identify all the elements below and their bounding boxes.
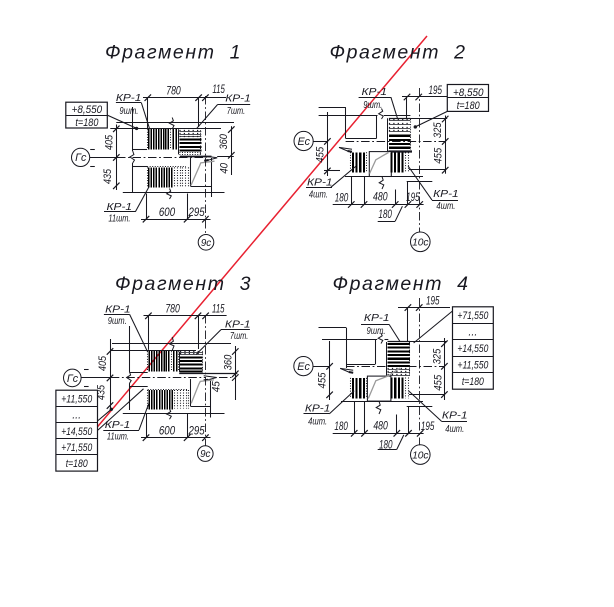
- svg-text:195: 195: [406, 192, 420, 204]
- svg-text:+14,550: +14,550: [61, 426, 92, 438]
- svg-text:195: 195: [426, 295, 440, 307]
- svg-text:40: 40: [218, 162, 230, 174]
- svg-text:4шт.: 4шт.: [436, 201, 455, 212]
- svg-text:435: 435: [102, 168, 114, 184]
- svg-text:КР-1: КР-1: [433, 189, 459, 200]
- svg-text:Фрагмент 4: Фрагмент 4: [332, 273, 469, 295]
- svg-text:Ес: Ес: [297, 136, 310, 148]
- svg-text:4шт.: 4шт.: [445, 424, 464, 435]
- svg-text:9с: 9с: [201, 238, 211, 249]
- svg-text:11шт.: 11шт.: [107, 432, 129, 443]
- svg-text:195: 195: [429, 85, 443, 97]
- svg-text:КР-1: КР-1: [305, 403, 331, 414]
- svg-text:Фрагмент 1: Фрагмент 1: [105, 41, 242, 63]
- svg-text:455: 455: [314, 146, 326, 163]
- svg-text:480: 480: [373, 421, 388, 433]
- svg-text:КР-1: КР-1: [307, 177, 333, 188]
- svg-text:195: 195: [421, 421, 435, 433]
- svg-text:Гс: Гс: [75, 152, 87, 164]
- svg-text:480: 480: [373, 191, 388, 203]
- svg-text:t=180: t=180: [462, 376, 484, 388]
- svg-text:КР-1: КР-1: [105, 304, 131, 315]
- svg-text:7шт.: 7шт.: [227, 106, 245, 117]
- svg-text:325: 325: [432, 122, 444, 138]
- svg-text:t=180: t=180: [66, 458, 88, 470]
- svg-text:780: 780: [166, 86, 181, 98]
- svg-text:КР-1: КР-1: [442, 411, 468, 422]
- svg-text:Фрагмент 2: Фрагмент 2: [329, 41, 466, 63]
- svg-text:405: 405: [103, 134, 115, 150]
- svg-text:180: 180: [334, 421, 348, 433]
- svg-text:115: 115: [212, 304, 225, 316]
- svg-text:4шт.: 4шт.: [309, 189, 328, 200]
- svg-text:КР-1: КР-1: [225, 94, 251, 105]
- svg-text:780: 780: [165, 304, 180, 316]
- svg-text:+71,550: +71,550: [457, 310, 488, 322]
- svg-text:...: ...: [72, 410, 81, 422]
- svg-text:360: 360: [223, 354, 235, 370]
- svg-text:t=180: t=180: [75, 117, 99, 129]
- svg-text:9шт.: 9шт.: [367, 326, 386, 337]
- svg-text:+8,550: +8,550: [453, 87, 484, 99]
- svg-text:10с: 10с: [412, 450, 428, 461]
- svg-text:405: 405: [97, 355, 109, 371]
- svg-text:...: ...: [468, 327, 477, 339]
- svg-text:КР-1: КР-1: [364, 313, 390, 324]
- svg-text:+11,550: +11,550: [61, 394, 92, 406]
- svg-text:КР-1: КР-1: [362, 87, 388, 98]
- svg-text:Ес: Ес: [297, 361, 310, 373]
- svg-text:Гс: Гс: [67, 373, 79, 385]
- svg-text:360: 360: [218, 133, 230, 149]
- svg-text:7шт.: 7шт.: [230, 331, 248, 342]
- svg-text:9с: 9с: [200, 449, 210, 460]
- svg-text:325: 325: [431, 348, 443, 364]
- svg-text:455: 455: [433, 374, 445, 391]
- svg-text:Фрагмент 3: Фрагмент 3: [115, 273, 252, 295]
- svg-text:9шт.: 9шт.: [119, 106, 138, 117]
- svg-text:КР-1: КР-1: [225, 319, 251, 330]
- svg-text:9шт.: 9шт.: [108, 316, 127, 327]
- svg-text:115: 115: [212, 84, 225, 96]
- svg-text:180: 180: [335, 192, 349, 204]
- svg-text:t=180: t=180: [457, 100, 481, 112]
- svg-text:45: 45: [211, 381, 223, 393]
- svg-text:4шт.: 4шт.: [308, 416, 327, 427]
- svg-text:11шт.: 11шт.: [108, 213, 130, 224]
- svg-text:КР-1: КР-1: [105, 420, 131, 431]
- svg-text:180: 180: [378, 209, 392, 221]
- svg-text:455: 455: [317, 372, 329, 389]
- svg-text:+8,550: +8,550: [72, 104, 103, 116]
- svg-text:455: 455: [433, 147, 445, 164]
- svg-text:9шт.: 9шт.: [363, 100, 382, 111]
- svg-text:295: 295: [188, 426, 206, 438]
- svg-text:10с: 10с: [412, 238, 428, 249]
- svg-text:600: 600: [159, 426, 176, 438]
- svg-text:+71,550: +71,550: [61, 442, 92, 454]
- svg-text:+11,550: +11,550: [457, 360, 488, 372]
- svg-text:600: 600: [159, 207, 176, 219]
- svg-text:+14,550: +14,550: [457, 343, 488, 355]
- svg-text:295: 295: [188, 207, 206, 219]
